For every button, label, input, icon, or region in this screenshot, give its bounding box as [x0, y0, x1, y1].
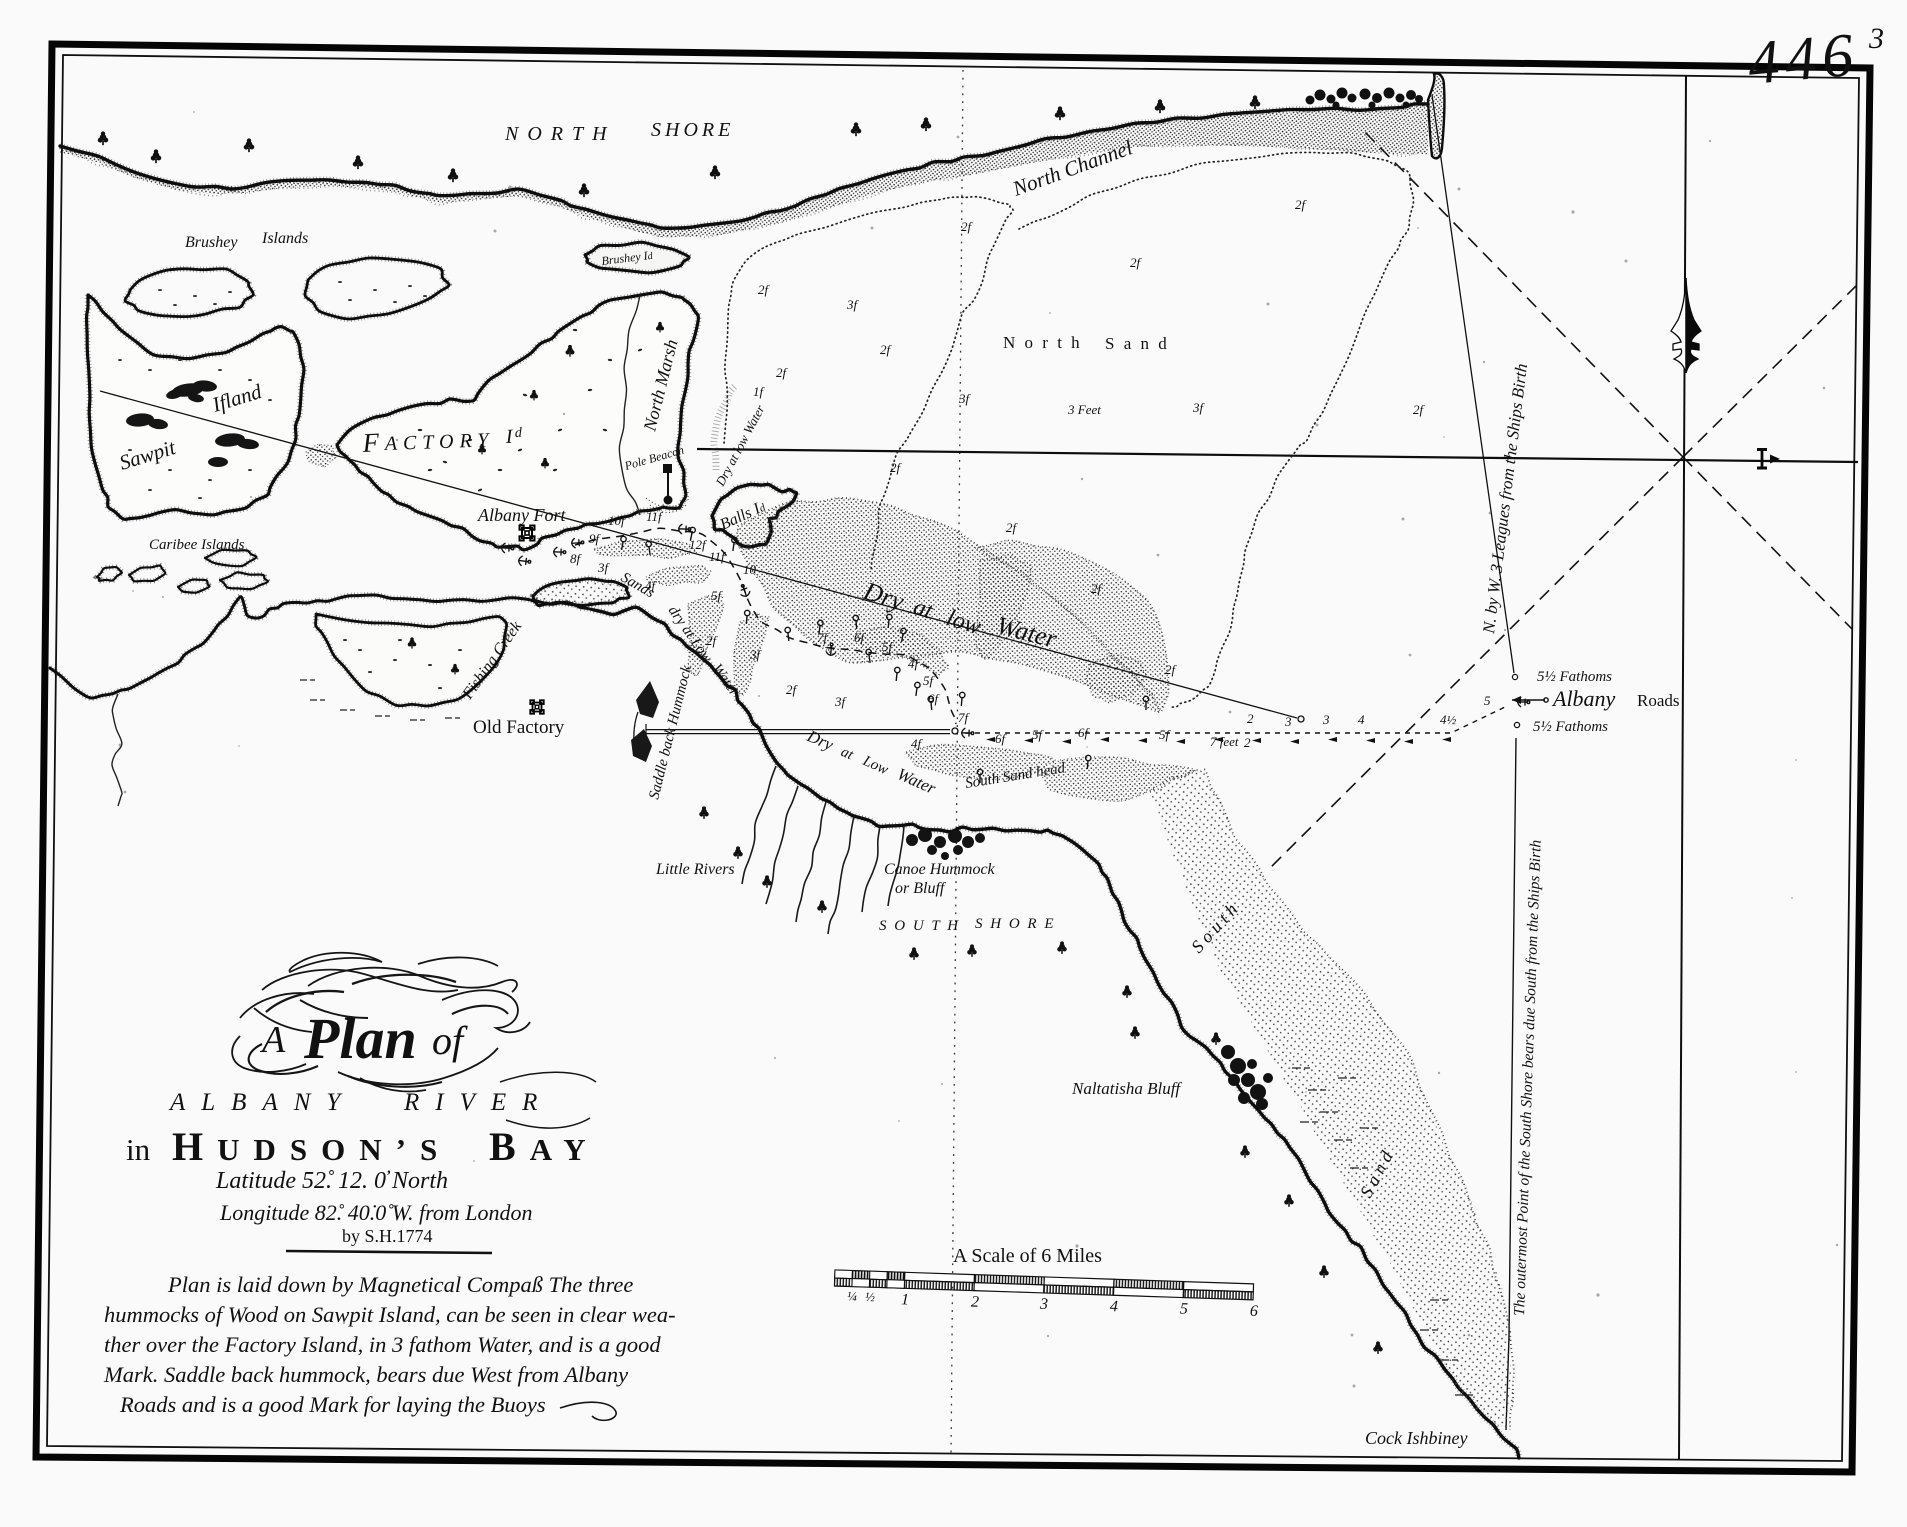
svg-text:F: F [361, 427, 381, 458]
svg-text:11f: 11f [709, 549, 727, 564]
svg-text:RIVER: RIVER [403, 1089, 553, 1116]
svg-text:NORTH: NORTH [504, 123, 616, 145]
svg-text:N o r t h: N o r t h [1003, 333, 1082, 352]
svg-text:5½ Fathoms: 5½ Fathoms [1537, 669, 1612, 685]
svg-text:Caribee Islands: Caribee Islands [149, 537, 245, 553]
svg-text:3: 3 [1039, 1296, 1049, 1313]
svg-text:10: 10 [743, 562, 757, 577]
svg-text:2: 2 [1247, 711, 1254, 726]
svg-text:3 Feet: 3 Feet [1067, 402, 1101, 417]
svg-text:Roads: Roads [1637, 691, 1680, 710]
svg-text:12f: 12f [689, 537, 708, 552]
svg-text:5: 5 [1180, 1300, 1189, 1317]
svg-text:2: 2 [1244, 735, 1251, 750]
svg-text:Cock Ishbiney: Cock Ishbiney [1365, 1428, 1467, 1448]
svg-text:3: 3 [1868, 22, 1884, 55]
svg-text:SHORE: SHORE [651, 119, 734, 141]
svg-text:Islands: Islands [261, 230, 308, 247]
svg-text:2: 2 [971, 1294, 980, 1311]
svg-text:A Scale of 6 Miles: A Scale of 6 Miles [953, 1245, 1102, 1267]
svg-text:3: 3 [1284, 714, 1292, 729]
svg-text:5: 5 [1484, 693, 1491, 708]
svg-text:A: A [259, 1019, 286, 1061]
svg-text:Roads and is a good Mark for l: Roads and is a good Mark for laying the … [119, 1392, 546, 1417]
svg-text:ther over the Factory Island,: ther over the Factory Island, in 3 fatho… [104, 1332, 661, 1357]
svg-text:Old Factory: Old Factory [473, 717, 565, 738]
svg-text:of: of [432, 1018, 468, 1063]
svg-text:Plan: Plan [303, 1006, 417, 1071]
svg-text:10f: 10f [608, 513, 627, 528]
svg-text:½: ½ [865, 1289, 875, 1304]
svg-text:Mark. Saddle back hummock,: Mark. Saddle back hummock, bears due Wes… [103, 1362, 628, 1387]
svg-text:Naltatisha Bluff: Naltatisha Bluff [1071, 1079, 1182, 1098]
svg-text:4: 4 [1110, 1298, 1119, 1315]
svg-text:by S.H.1774: by S.H.1774 [342, 1226, 433, 1246]
svg-text:¼: ¼ [847, 1288, 857, 1303]
svg-text:4: 4 [1358, 712, 1365, 727]
svg-text:or Bluff: or Bluff [895, 880, 947, 897]
svg-text:hummocks of Wood on Sawpit Isl: hummocks of Wood on Sawpit Island, can b… [104, 1302, 676, 1327]
svg-text:1: 1 [901, 1291, 910, 1308]
svg-text:in: in [126, 1132, 151, 1167]
svg-text:S H O R E: S H O R E [975, 916, 1056, 932]
svg-text:Brushey: Brushey [185, 234, 238, 251]
svg-text:Canoe Hummock: Canoe Hummock [884, 861, 996, 878]
svg-text:Plan is laid down by Magnetica: Plan is laid down by Magnetical Compaß T… [167, 1272, 633, 1297]
svg-text:Latitude 52̊. 12. 0̓ North: Latitude 52̊. 12. 0̓ North [215, 1168, 448, 1194]
svg-text:3: 3 [1322, 712, 1330, 727]
svg-text:S O U T H: S O U T H [879, 918, 960, 934]
svg-text:Albany: Albany [1551, 686, 1616, 711]
svg-text:Longitude 82̊. 40̇.0̊ W. from: Longitude 82̊. 40̇.0̊ W. from London [219, 1200, 533, 1225]
svg-text:6: 6 [1250, 1303, 1259, 1320]
svg-text:5½ Fathoms: 5½ Fathoms [1533, 719, 1608, 735]
svg-text:ALBANY: ALBANY [168, 1089, 356, 1116]
svg-text:446: 446 [1745, 21, 1862, 98]
svg-text:S a n d: S a n d [1105, 334, 1169, 353]
svg-text:ACTORY: ACTORY [382, 429, 494, 455]
svg-text:Little Rivers: Little Rivers [655, 861, 735, 878]
svg-text:11f: 11f [646, 509, 664, 524]
svg-text:4½: 4½ [1440, 712, 1457, 727]
svg-text:7 feet: 7 feet [1210, 734, 1239, 749]
